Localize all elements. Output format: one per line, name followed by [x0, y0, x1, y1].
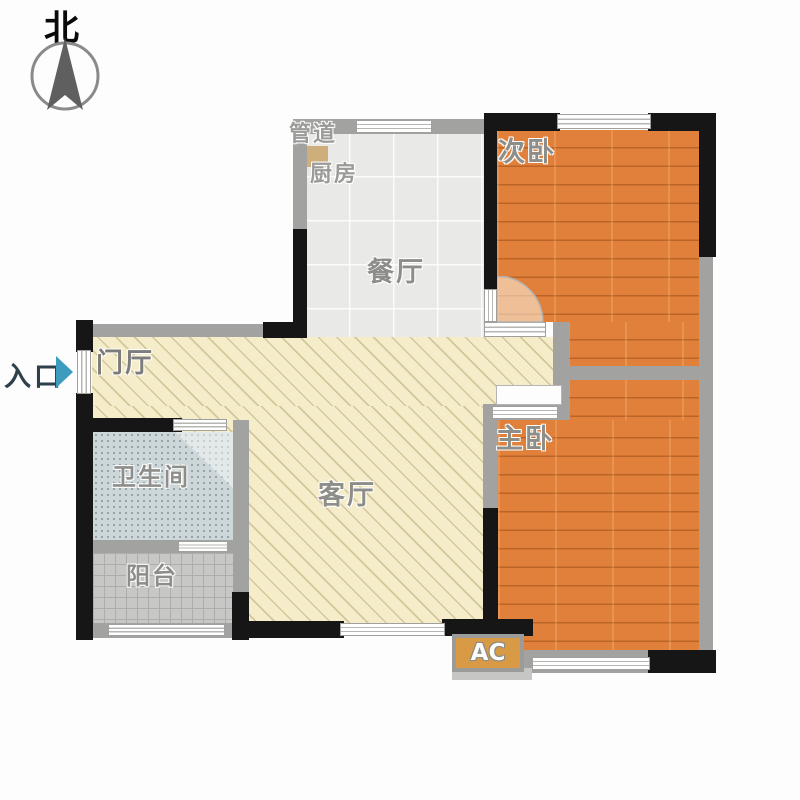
entrance-label: 入口: [4, 355, 64, 394]
wall-master-bottom-right: [648, 650, 716, 673]
balcony-label: 阳台: [126, 564, 178, 588]
foyer-label: 门厅: [96, 350, 154, 377]
bathroom-label: 卫生间: [112, 465, 190, 489]
balcony-door: [178, 541, 228, 552]
entrance-door: [77, 350, 91, 394]
ac-label: AC: [471, 640, 506, 666]
wall-foyer-corner-arm: [263, 322, 307, 338]
wall-bathroom-right: [233, 420, 249, 592]
dining-divider-opening: [484, 289, 497, 322]
living-window: [340, 623, 445, 636]
master-window: [532, 657, 650, 670]
bedroom2-door: [484, 322, 546, 337]
kitchen-label: 厨房: [310, 164, 358, 186]
master-door: [492, 406, 558, 419]
ac-unit: AC: [452, 634, 524, 672]
floor-bedroom2-lower: [568, 322, 700, 366]
compass-icon: [14, 2, 114, 114]
duct-label: 管道: [289, 124, 337, 146]
wall-living-master-divider-lower: [483, 508, 498, 638]
master-label: 主卧: [496, 426, 554, 453]
wall-foyer-top: [90, 324, 267, 337]
balcony-window: [108, 624, 225, 636]
wall-living-master-divider-upper: [483, 404, 498, 508]
wall-bathroom-top: [90, 418, 182, 432]
bedroom2-door-arc: [497, 276, 544, 323]
wall-bedrooms-divider: [553, 366, 712, 380]
wall-right-lower: [699, 255, 713, 655]
wall-bedroom2-right: [699, 113, 716, 257]
dining-label: 餐厅: [367, 259, 425, 286]
master-door-recess: [496, 385, 562, 405]
bathroom-door: [173, 419, 227, 431]
floor-foyer-living-upper: [92, 337, 555, 406]
wall-left-upper: [76, 320, 93, 352]
kitchen-window: [356, 120, 432, 133]
bedroom2-window: [557, 114, 651, 129]
bedroom2-label: 次卧: [498, 139, 556, 166]
wall-living-bottom-left: [246, 621, 344, 638]
floor-plan: 北 入口: [0, 0, 800, 800]
entrance-arrow-icon: [56, 356, 73, 388]
wall-dining-bedroom2-divider: [484, 113, 497, 290]
floor-master-upper: [568, 380, 700, 420]
living-label: 客厅: [318, 482, 376, 509]
